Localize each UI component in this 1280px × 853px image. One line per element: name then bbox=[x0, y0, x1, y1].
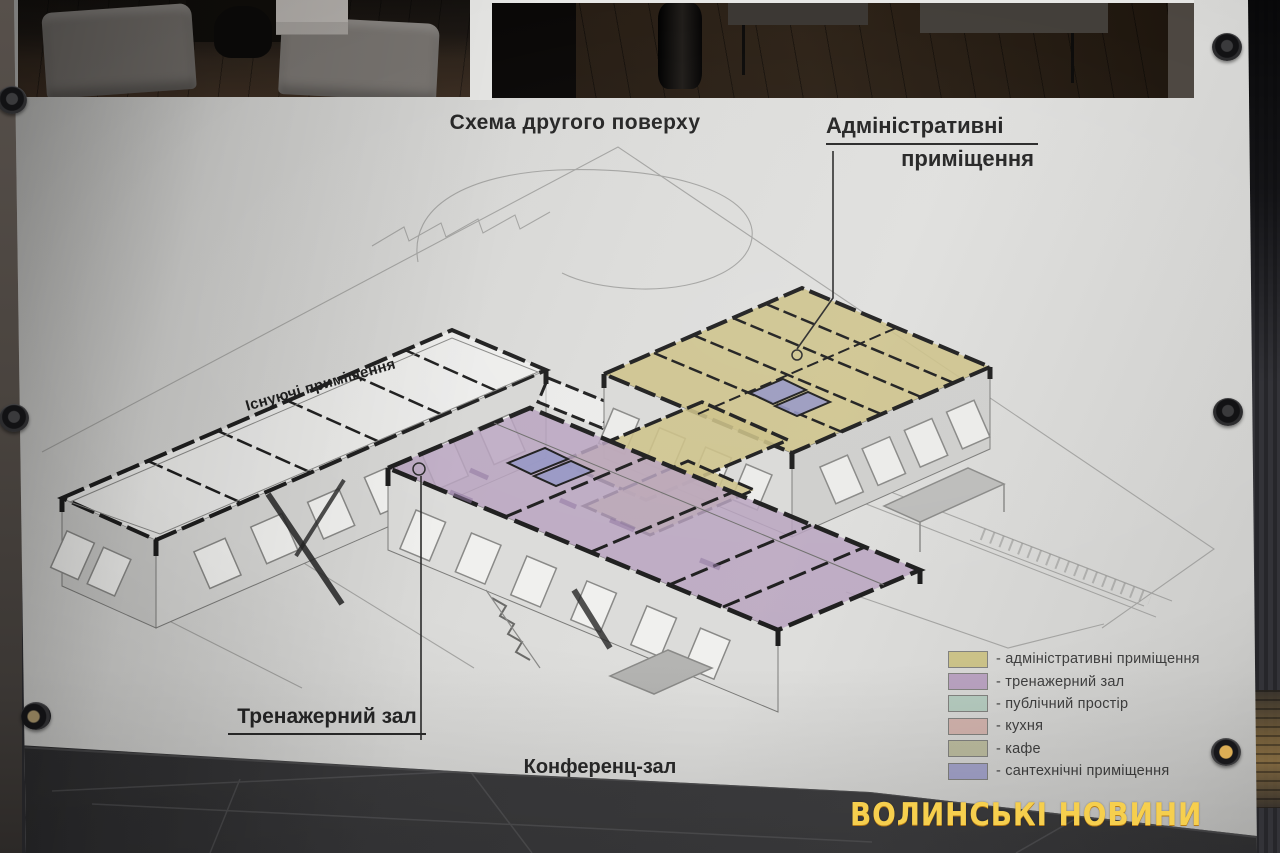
legend-label: - кухня bbox=[996, 718, 1043, 734]
legend: - адміністративні приміщення - тренажерн… bbox=[948, 648, 1200, 782]
legend-label: - тренажерний зал bbox=[996, 674, 1124, 690]
news-watermark: ВОЛИНСЬКІ НОВИНИ bbox=[850, 797, 1210, 833]
admin-zone-label-line2: приміщення bbox=[826, 145, 1038, 174]
grommet bbox=[0, 404, 29, 432]
legend-swatch-admin bbox=[948, 651, 988, 668]
grommet bbox=[21, 702, 51, 730]
legend-swatch-public bbox=[948, 695, 988, 712]
admin-zone-label-line1: Адміністративні bbox=[826, 112, 1038, 145]
legend-swatch-sanitary bbox=[948, 763, 988, 780]
admin-zone-label: Адміністративні приміщення bbox=[826, 112, 1038, 173]
photo-scene: Схема другого поверху Адміністративні пр… bbox=[0, 0, 1280, 853]
grommet bbox=[1211, 738, 1241, 766]
banner-poster: Схема другого поверху Адміністративні пр… bbox=[0, 0, 1280, 853]
grommet bbox=[1213, 398, 1243, 426]
legend-swatch-gym bbox=[948, 673, 988, 690]
legend-row: - кухня bbox=[948, 715, 1200, 737]
legend-row: - кафе bbox=[948, 738, 1200, 760]
legend-swatch-cafe bbox=[948, 740, 988, 757]
legend-row: - сантехнічні приміщення bbox=[948, 760, 1200, 782]
legend-row: - адміністративні приміщення bbox=[948, 648, 1200, 670]
legend-row: - публічний простір bbox=[948, 693, 1200, 715]
ramp-hatch bbox=[982, 534, 1150, 599]
legend-label: - адміністративні приміщення bbox=[996, 651, 1200, 667]
legend-label: - публічний простір bbox=[996, 696, 1128, 712]
grommet bbox=[1212, 33, 1242, 61]
legend-label: - кафе bbox=[996, 741, 1041, 757]
plan-title: Схема другого поверху bbox=[430, 111, 720, 135]
legend-row: - тренажерний зал bbox=[948, 670, 1200, 692]
legend-swatch-kitchen bbox=[948, 718, 988, 735]
gym-zone-label: Тренажерний зал bbox=[228, 705, 426, 735]
legend-label: - сантехнічні приміщення bbox=[996, 763, 1169, 779]
